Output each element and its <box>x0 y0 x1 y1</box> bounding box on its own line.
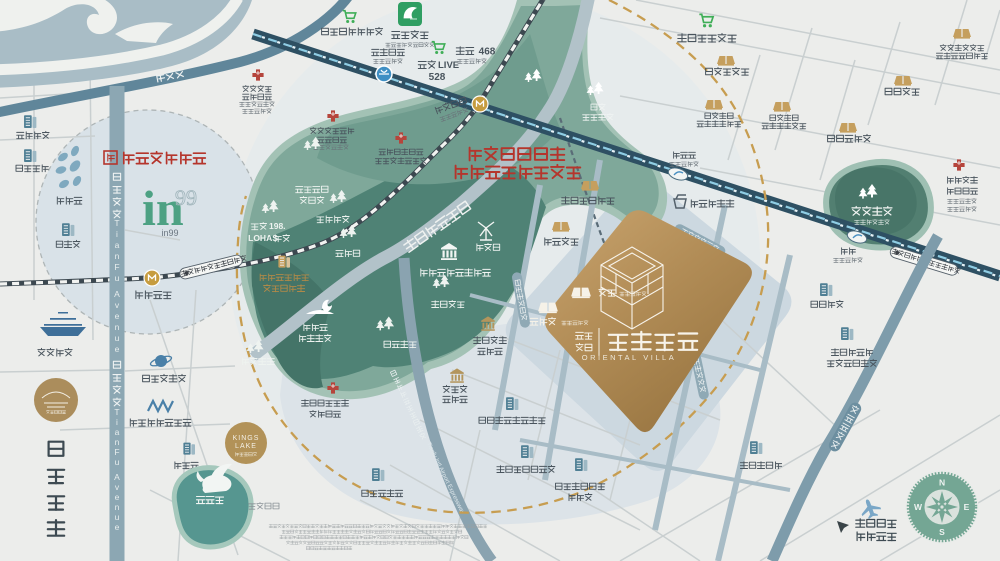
svg-text:E: E <box>964 502 970 512</box>
svg-text:u: u <box>115 457 120 467</box>
svg-text:KINGS: KINGS <box>233 435 260 442</box>
svg-text:u: u <box>115 333 120 343</box>
svg-text:n: n <box>115 251 120 261</box>
svg-text:468: 468 <box>479 47 496 58</box>
svg-text:LIVE: LIVE <box>438 60 459 71</box>
svg-text:in99: in99 <box>161 228 178 238</box>
svg-text:LOHAS: LOHAS <box>248 233 278 243</box>
svg-text:e: e <box>115 311 120 321</box>
svg-text:e: e <box>115 522 120 532</box>
svg-text:A: A <box>114 472 120 482</box>
svg-text:e: e <box>115 344 120 354</box>
svg-text:n: n <box>115 322 120 332</box>
svg-text:u: u <box>115 273 120 283</box>
svg-text:99: 99 <box>175 185 197 210</box>
svg-text:A: A <box>114 289 120 299</box>
svg-text:LAKE: LAKE <box>235 443 257 450</box>
svg-text:a: a <box>115 427 120 437</box>
svg-text:n: n <box>115 437 120 447</box>
svg-text:T: T <box>114 218 119 228</box>
svg-text:N: N <box>939 478 945 488</box>
svg-text:T: T <box>114 407 119 417</box>
svg-text:i: i <box>116 229 118 239</box>
svg-text:W: W <box>914 502 923 512</box>
svg-text:528: 528 <box>429 72 446 83</box>
svg-text:F: F <box>114 262 119 272</box>
svg-text:e: e <box>115 492 120 502</box>
svg-text:u: u <box>115 512 120 522</box>
svg-text:n: n <box>115 502 120 512</box>
svg-text:ORIENTAL VILLA: ORIENTAL VILLA <box>582 353 676 362</box>
svg-text:a: a <box>115 240 120 250</box>
svg-text:F: F <box>114 447 119 457</box>
svg-text:198.: 198. <box>269 221 286 231</box>
svg-text:i: i <box>116 417 118 427</box>
svg-text:S: S <box>939 527 945 537</box>
